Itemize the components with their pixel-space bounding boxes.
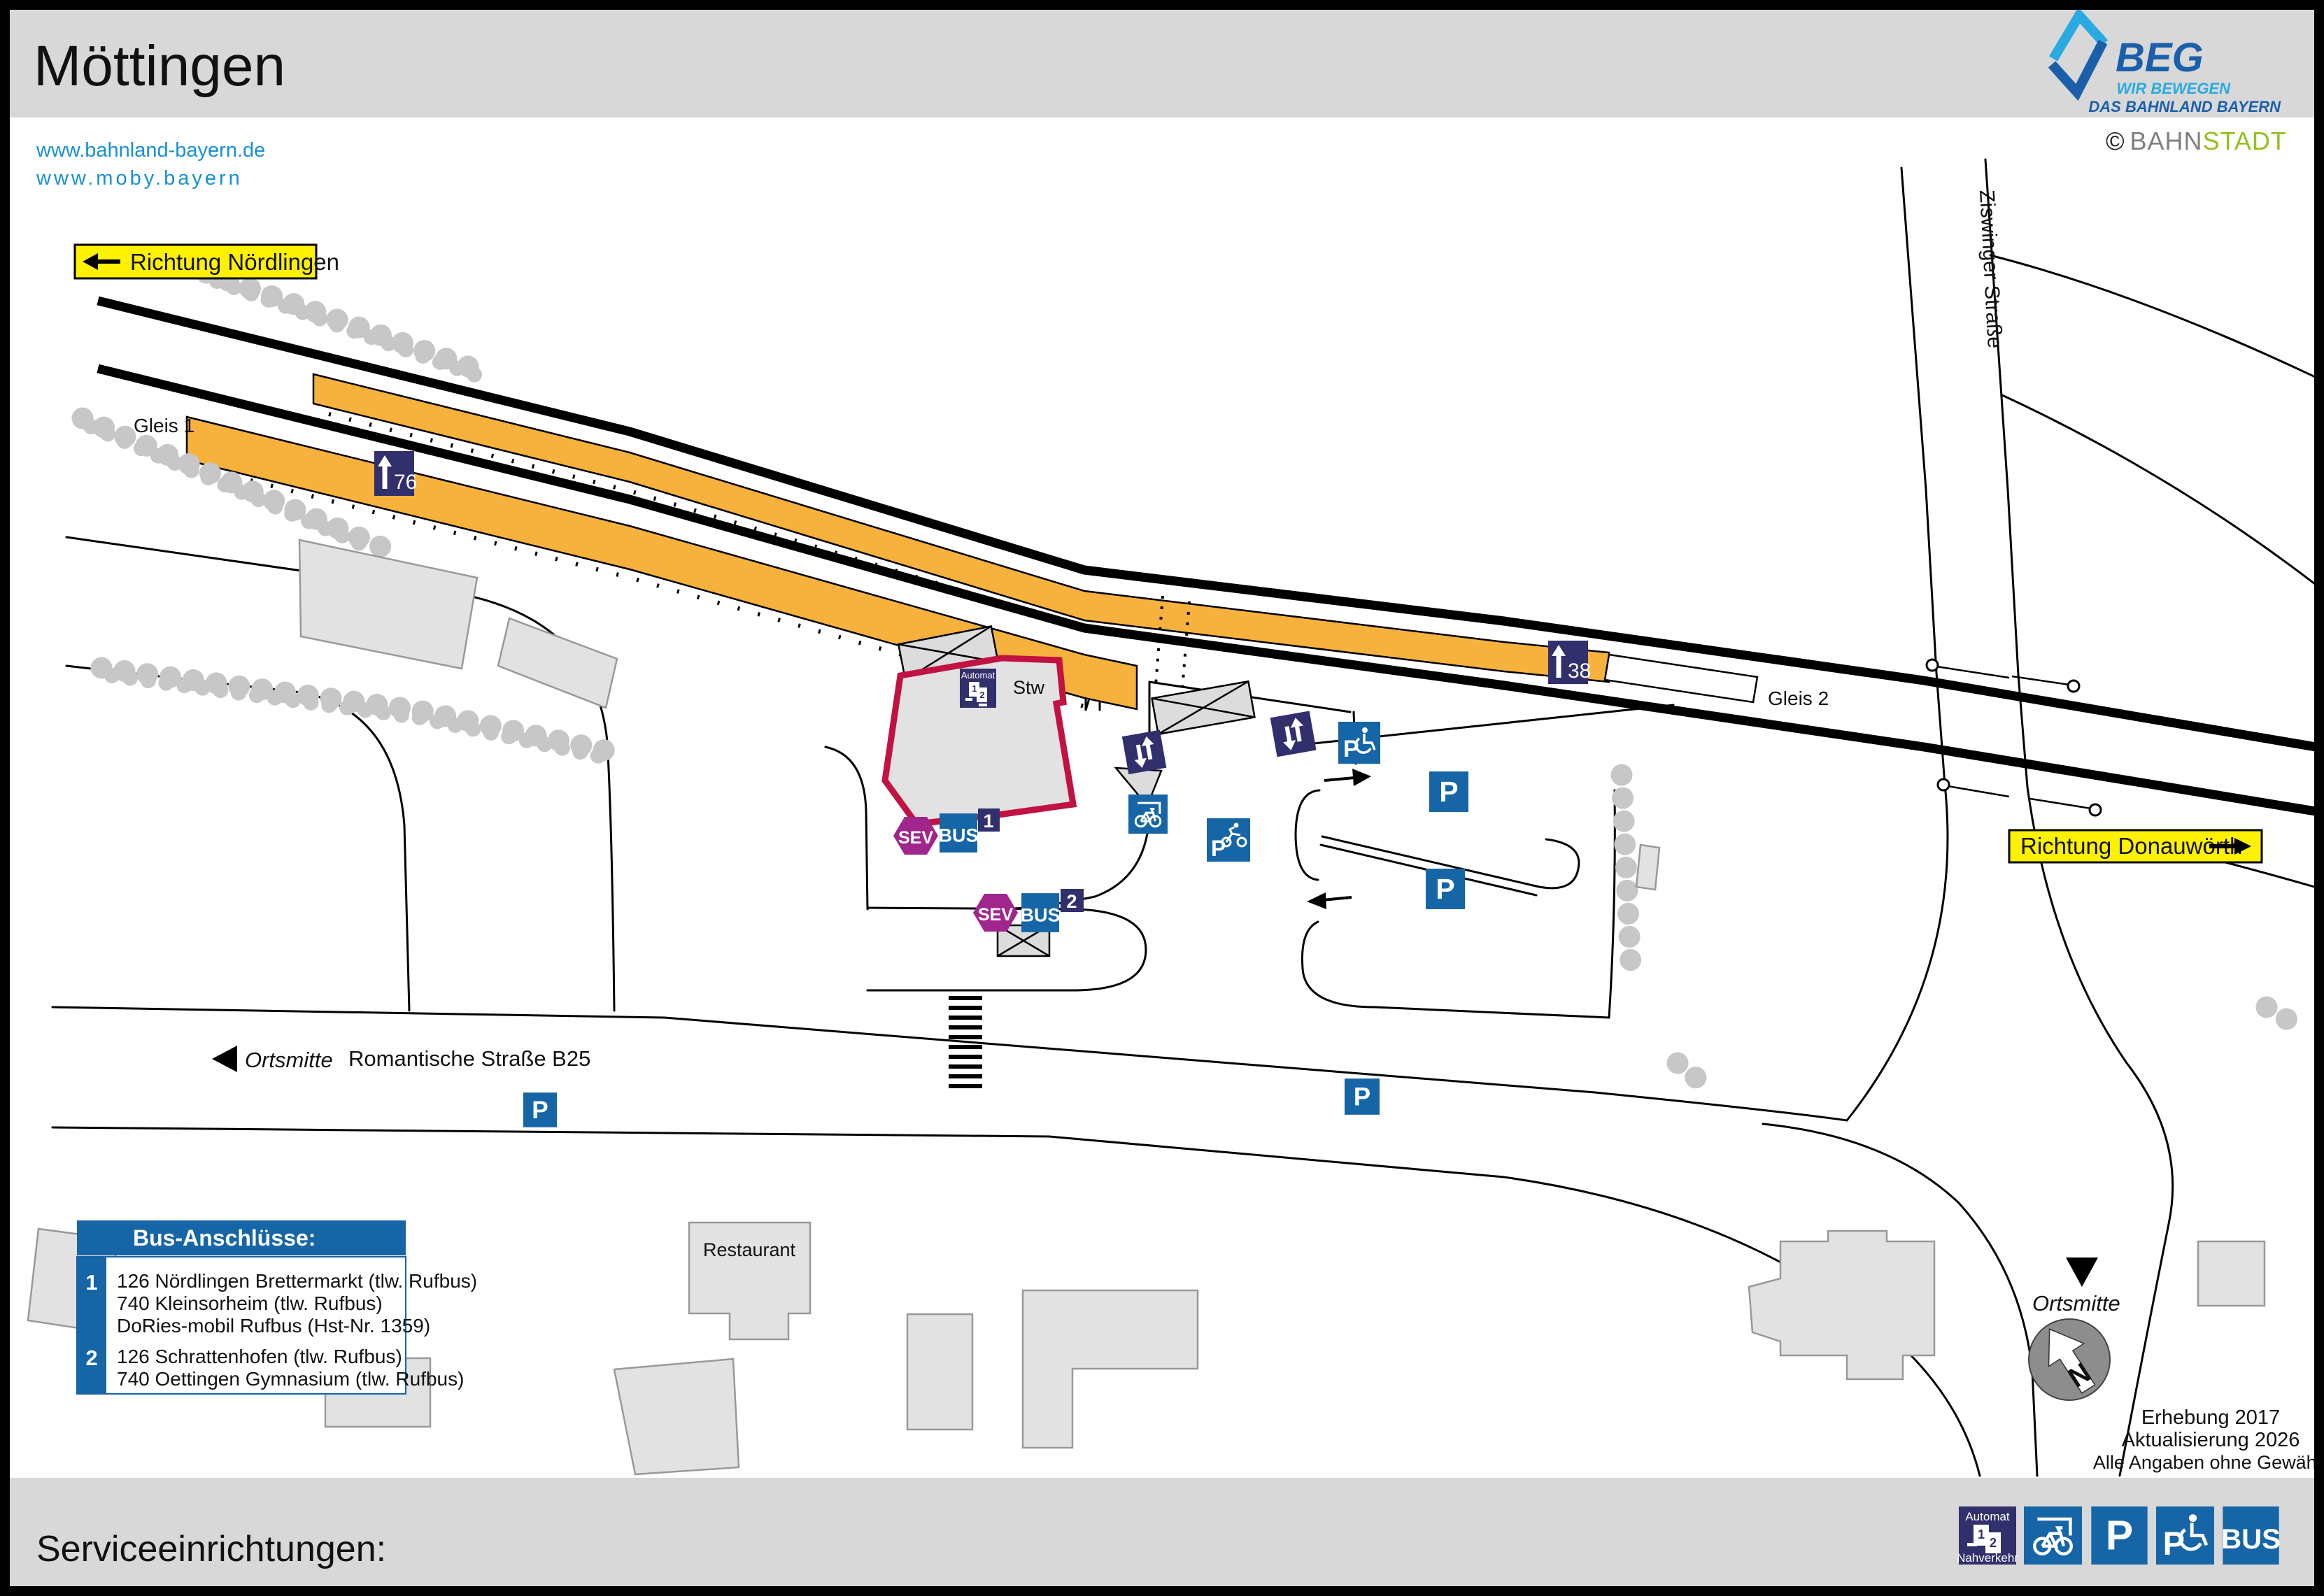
stop-number-1: 1 <box>983 811 993 832</box>
track-crossing-icon-west <box>1122 730 1167 775</box>
link-moby[interactable]: www.moby.bayern <box>36 167 243 190</box>
svg-text:Nahverkehr: Nahverkehr <box>1957 1551 2018 1565</box>
compass-north-icon: N <box>2029 1318 2110 1400</box>
svg-text:38: 38 <box>1568 660 1591 683</box>
ticket-machine-legend-icon: Automat 1 2 Nahverkehr <box>1957 1506 2018 1565</box>
station-map-page: P BUS SEV <box>0 0 2324 1596</box>
page-title: Möttingen <box>34 34 285 98</box>
romantische-strasse-label: Romantische Straße B25 <box>348 1046 590 1071</box>
building-6 <box>907 1314 972 1430</box>
legend-line: 740 Oettingen Gymnasium (tlw. Rufbus) <box>117 1368 464 1390</box>
svg-text:2: 2 <box>1990 1536 1997 1550</box>
svg-text:1: 1 <box>972 683 977 694</box>
legend-stop-1: 1 <box>85 1270 97 1295</box>
moped-parking-icon <box>1207 818 1250 862</box>
footer-service-icons: Automat 1 2 Nahverkehr <box>1957 1506 2281 1565</box>
parking-legend-icon <box>2091 1506 2147 1565</box>
building-9 <box>2198 1241 2265 1306</box>
sign-richtung-donauwoerth: Richtung Donauwörth <box>2009 830 2262 862</box>
bus-icon <box>1020 893 1060 932</box>
disabled-parking-icon <box>1338 722 1380 764</box>
building-10 <box>1636 845 1659 890</box>
survey-note: Erhebung 2017 <box>2141 1406 2280 1429</box>
ticket-machine-icon: Automat 1 2 <box>960 669 996 708</box>
svg-text:Automat: Automat <box>1965 1510 2010 1523</box>
gleis-2-label: Gleis 2 <box>1768 687 1829 709</box>
bus-icon <box>938 813 978 853</box>
station-map-svg: P BUS SEV <box>0 0 2324 1596</box>
svg-text:Richtung Donauwörth: Richtung Donauwörth <box>2020 833 2242 859</box>
copyright-icon: © <box>2106 127 2125 155</box>
bike-parking-legend-icon <box>2024 1506 2082 1565</box>
update-note: Aktualisierung 2026 <box>2122 1429 2300 1451</box>
parking-icon-1 <box>1429 771 1468 812</box>
bus-legend-icon <box>2221 1506 2281 1565</box>
legend-line: 126 Nördlingen Brettermarkt (tlw. Rufbus… <box>117 1270 477 1292</box>
svg-text:Ortsmitte: Ortsmitte <box>245 1048 333 1072</box>
platform-height-marker-38: 38 <box>1548 641 1591 684</box>
legend-stop-2: 2 <box>85 1346 97 1370</box>
stw-label: Stw <box>1013 677 1045 698</box>
parking-icon-3 <box>523 1092 557 1127</box>
legend-line: 126 Schrattenhofen (tlw. Rufbus) <box>117 1346 402 1367</box>
beg-wordmark: BEG <box>2116 35 2204 80</box>
disabled-parking-legend-icon <box>2156 1506 2214 1565</box>
legend-line: 740 Kleinsorheim (tlw. Rufbus) <box>117 1292 383 1314</box>
ortsmitte-west: Ortsmitte <box>212 1046 333 1072</box>
bahnstadt-credit: ©BAHNSTADT <box>2106 127 2287 155</box>
footer-title: Serviceeinrichtungen: <box>36 1529 386 1569</box>
legend-line: DoRies-mobil Rufbus (Hst-Nr. 1359) <box>117 1315 430 1337</box>
svg-text:1: 1 <box>1978 1527 1985 1541</box>
platform-height-marker-76: 76 <box>374 451 417 496</box>
svg-text:Automat: Automat <box>961 670 996 681</box>
svg-text:76: 76 <box>394 471 417 494</box>
gleis-1-label: Gleis 1 <box>134 415 194 436</box>
disclaimer-note: Alle Angaben ohne Gewähr! <box>2093 1452 2324 1473</box>
svg-text:Ortsmitte: Ortsmitte <box>2032 1291 2120 1316</box>
header-band <box>10 10 2314 117</box>
link-bahnland[interactable]: www.bahnland-bayern.de <box>36 139 265 162</box>
stop-number-2: 2 <box>1066 891 1077 912</box>
beg-tagline-2: DAS BAHNLAND BAYERN <box>2088 98 2281 115</box>
restaurant-label: Restaurant <box>703 1239 796 1260</box>
legend-title: Bus-Anschlüsse: <box>133 1225 316 1251</box>
beg-tagline-1: WIR BEWEGEN <box>2116 80 2231 97</box>
parking-icon-4 <box>1345 1078 1380 1115</box>
track-crossing-icon-east <box>1270 711 1317 757</box>
svg-text:Richtung Nördlingen: Richtung Nördlingen <box>130 249 339 275</box>
parking-icon-2 <box>1426 869 1465 909</box>
building-5 <box>614 1359 739 1474</box>
bike-parking-icon <box>1128 795 1168 834</box>
svg-text:2: 2 <box>979 690 984 700</box>
sign-richtung-noerdlingen: Richtung Nördlingen <box>75 245 339 278</box>
